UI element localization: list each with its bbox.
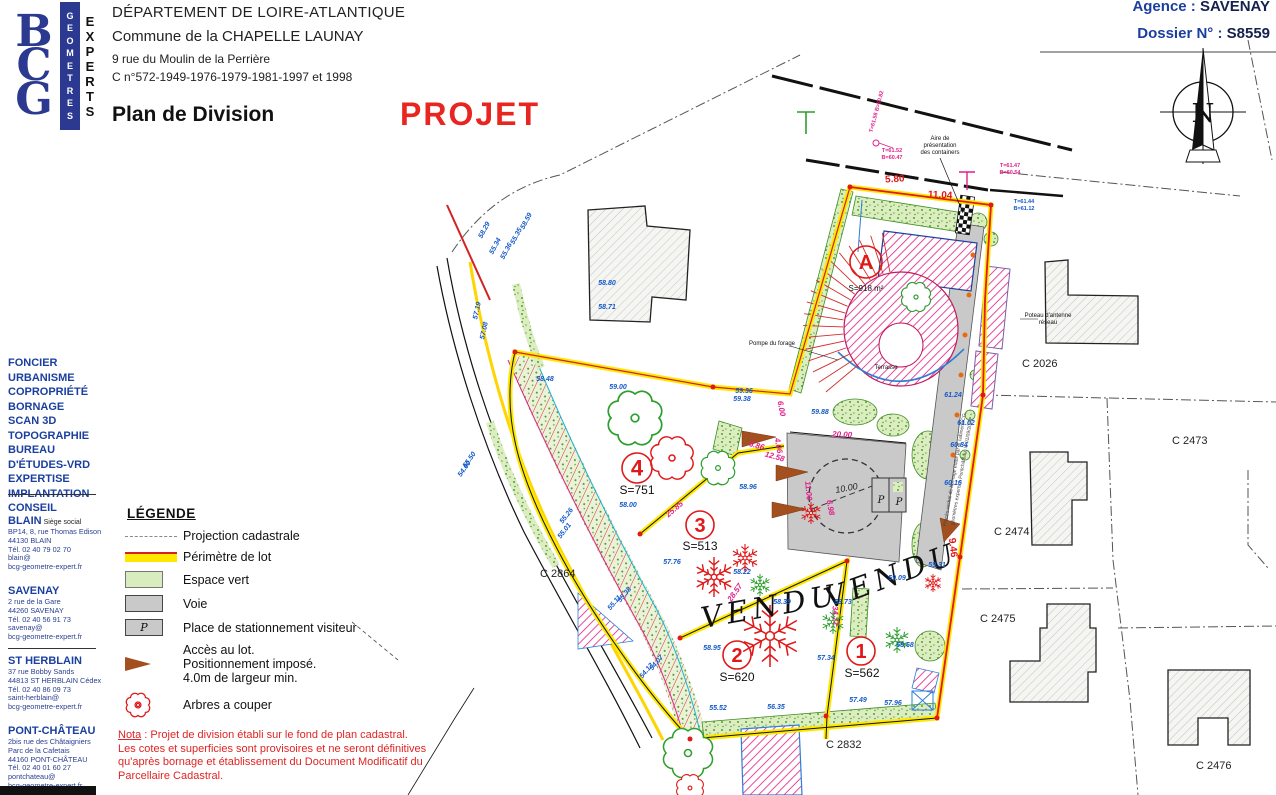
- legend-label: 4.0m de largeur min.: [183, 671, 316, 685]
- lot-area-2: S=620: [719, 670, 754, 684]
- map-label: T=61.47: [1000, 163, 1020, 169]
- sidebar-service-item: FONCIER: [8, 356, 90, 371]
- lot-area-4: S=751: [619, 483, 654, 497]
- map-label: 59.31: [928, 562, 946, 569]
- map-label: C 2476: [1196, 760, 1231, 772]
- legend-label: Place de stationnement visiteur: [183, 621, 357, 635]
- legend-label: Périmètre de lot: [183, 550, 271, 564]
- office-name: PONT-CHÂTEAU: [8, 725, 112, 737]
- legend-item-vert: Espace vert: [125, 571, 370, 588]
- sidebar-service-item: TOPOGRAPHIE: [8, 429, 90, 444]
- legend-item-parking: PPlace de stationnement visiteur: [125, 619, 370, 636]
- map-label: C 2475: [980, 613, 1015, 625]
- parking-swatch-icon: P: [125, 619, 163, 636]
- nota-line-3: qu'après bornage et établissement du Doc…: [118, 756, 454, 770]
- map-label: P: [877, 495, 885, 506]
- bcg-logo-letters: BCG: [8, 2, 60, 130]
- lot-area-3: S=513: [682, 539, 717, 553]
- plan-de-division-page: AS=918 m²4S=7513S=5132S=6201S=562 C 2026…: [0, 0, 1276, 795]
- cadastral-swatch-icon: [125, 536, 177, 537]
- map-label: T=61.58 B=60.82: [869, 90, 886, 133]
- header-departement: DÉPARTEMENT DE LOIRE-ATLANTIQUE: [112, 4, 405, 21]
- map-label: N: [1192, 99, 1215, 129]
- legend-label: Projection cadastrale: [183, 529, 300, 543]
- office-name: SAVENAY: [8, 585, 112, 597]
- legend-title: LÉGENDE: [127, 506, 370, 521]
- lot-number-4: 4: [631, 456, 644, 481]
- map-label: 58.48: [536, 376, 554, 383]
- map-label: 56.35: [767, 704, 785, 711]
- map-label: 55.52: [709, 705, 727, 712]
- map-label: 58.22: [733, 569, 751, 576]
- bcg-logo-experts: EXPERTS: [80, 2, 100, 130]
- map-label: 59.38: [733, 396, 751, 403]
- map-label: 60.84: [950, 442, 968, 449]
- map-label: 61.24: [944, 392, 962, 399]
- legend-rows: Projection cadastralePérimètre de lotEsp…: [125, 529, 370, 718]
- sidebar-services: FONCIERURBANISMECOPROPRIÉTÉBORNAGESCAN 3…: [8, 356, 90, 516]
- legend-label: Voie: [183, 597, 207, 611]
- sidebar-divider-2: [8, 648, 96, 649]
- map-label: 11.04: [928, 189, 953, 201]
- map-label: Poteau d'antenne: [1025, 313, 1073, 319]
- legend-label: Accès au lot.: [183, 643, 316, 657]
- map-label: 55.01: [557, 522, 573, 540]
- header-address: 9 rue du Moulin de la Perrière: [112, 52, 405, 66]
- office-line: bcg-geometre-expert.fr: [8, 633, 112, 642]
- office-block: ST HERBLAIN37 rue Bobby Sands44813 ST HE…: [8, 655, 112, 712]
- map-label: 57.49: [849, 697, 867, 704]
- nota-line-2: Les cotes et superficies sont provisoire…: [118, 743, 454, 757]
- sidebar-service-item: EXPERTISE: [8, 472, 90, 487]
- map-label: T=61.52: [882, 148, 902, 154]
- sidebar-divider-1: [8, 494, 96, 495]
- map-label: 58.73: [834, 599, 852, 606]
- office-line: bcg-geometre-expert.fr: [8, 703, 112, 712]
- office-block: PONT-CHÂTEAU2bis rue des ChâtaigniersPar…: [8, 725, 112, 791]
- legend-label: Positionnement imposé.: [183, 657, 316, 671]
- nota-block: Nota : Projet de division établi sur le …: [118, 729, 454, 783]
- lot-number-2: 2: [731, 645, 742, 667]
- map-label: Pompe du forage: [749, 341, 796, 347]
- map-label: 6.00: [776, 400, 788, 417]
- map-label: 11.00: [803, 481, 814, 502]
- legend-item-acces: Accès au lot.Positionnement imposé.4.0m …: [125, 643, 370, 685]
- map-label: 58.71: [598, 304, 616, 311]
- map-label: 55.34: [488, 237, 502, 256]
- nota-line-4: Parcellaire Cadastral.: [118, 770, 454, 784]
- lot-number-3: 3: [694, 515, 705, 537]
- map-label: B=60.47: [882, 155, 903, 161]
- map-label: réseau: [1039, 320, 1057, 326]
- perimetre-swatch-icon: [125, 552, 177, 562]
- sidebar-service-item: CONSEIL: [8, 501, 90, 516]
- legend-label: Espace vert: [183, 573, 249, 587]
- sidebar-service-item: D'ÉTUDES-VRD: [8, 458, 90, 473]
- map-label: 58.59: [519, 212, 533, 231]
- sidebar-service-item: BUREAU: [8, 443, 90, 458]
- map-label: 58.80: [598, 280, 616, 287]
- map-label: 57.96: [884, 700, 902, 707]
- legend-label: Arbres a couper: [183, 698, 272, 712]
- legend-item-voie: Voie: [125, 595, 370, 612]
- map-label: 58.68: [896, 642, 914, 649]
- header-cadastre-refs: C n°572-1949-1976-1979-1981-1997 et 1998: [112, 70, 405, 84]
- bcg-logo-geometres: GEOMETRES: [60, 2, 80, 130]
- map-label: C 2026: [1022, 358, 1057, 370]
- legend-item-perimetre: Périmètre de lot: [125, 550, 370, 564]
- legend-item-arbre: Arbres a couper: [125, 692, 370, 718]
- projet-stamp: PROJET: [400, 96, 540, 133]
- map-label: P: [895, 497, 903, 508]
- map-label: C 2474: [994, 526, 1029, 538]
- sidebar-service-item: URBANISME: [8, 371, 90, 386]
- dossier-line: Dossier N° : S8559: [1132, 20, 1270, 47]
- map-label: 59.88: [811, 409, 829, 416]
- map-label: C 2832: [826, 739, 861, 751]
- page-title: Plan de Division: [112, 103, 274, 127]
- office-line: bcg-geometre-expert.fr: [8, 563, 112, 572]
- map-label: présentation: [923, 143, 956, 149]
- map-label: C 2864: [540, 568, 575, 580]
- map-label: 61.02: [957, 420, 975, 427]
- office-block: SAVENAY2 rue de la Gare44260 SAVENAYTél.…: [8, 585, 112, 642]
- agency-dossier-block: Agence : SAVENAY Dossier N° : S8559: [1132, 0, 1270, 47]
- map-label: 58.00: [619, 502, 637, 509]
- tree-to-cut-icon: [125, 692, 151, 718]
- lot-area-A: S=918 m²: [849, 284, 884, 293]
- office-name: ST HERBLAIN: [8, 655, 112, 667]
- map-label: 57.76: [663, 559, 681, 566]
- map-label: 58.95: [703, 645, 721, 652]
- vert-swatch-icon: [125, 571, 163, 588]
- map-label: 58.39: [773, 599, 791, 606]
- map-label: 59.36: [735, 388, 753, 395]
- office-name: BLAINSiège social: [8, 515, 112, 527]
- road-edges-top: [772, 76, 1072, 196]
- lot-area-1: S=562: [844, 666, 879, 680]
- sidebar-bottom-bar: [0, 786, 96, 795]
- map-label: des containers: [920, 150, 959, 156]
- bcg-logo: BCG GEOMETRES EXPERTS: [8, 2, 108, 130]
- legend: LÉGENDE Projection cadastralePérimètre d…: [125, 506, 370, 725]
- map-label: 60.16: [944, 480, 962, 487]
- map-label: B=61.12: [1014, 206, 1035, 212]
- acces-swatch-icon: [125, 657, 151, 671]
- sidebar-service-item: COPROPRIÉTÉ: [8, 385, 90, 400]
- map-label: C 2473: [1172, 435, 1207, 447]
- agency-line: Agence : SAVENAY: [1132, 0, 1270, 20]
- sidebar-offices: BLAINSiège socialBP14, 8, rue Thomas Edi…: [8, 515, 112, 795]
- sidebar-service-item: SCAN 3D: [8, 414, 90, 429]
- map-label: 5.80: [885, 173, 906, 185]
- header-commune: Commune de la CHAPELLE LAUNAY: [112, 28, 405, 45]
- map-label: 57.34: [817, 655, 835, 662]
- map-label: 58.96: [739, 484, 757, 491]
- map-label: 54.60: [457, 460, 473, 478]
- sidebar-service-item: BORNAGE: [8, 400, 90, 415]
- map-label: 20.00: [831, 429, 853, 439]
- office-block: BLAINSiège socialBP14, 8, rue Thomas Edi…: [8, 515, 112, 572]
- map-label: 59.09: [888, 575, 906, 582]
- lot-number-1: 1: [855, 641, 866, 663]
- header-block: DÉPARTEMENT DE LOIRE-ATLANTIQUE Commune …: [112, 4, 405, 84]
- map-label: Terrasse: [874, 365, 898, 371]
- legend-item-cadastral: Projection cadastrale: [125, 529, 370, 543]
- nota-line-1: Nota : Projet de division établi sur le …: [118, 729, 454, 743]
- map-label: Aire de: [930, 136, 950, 142]
- lot-number-A: A: [859, 252, 873, 274]
- map-label: 59.00: [609, 384, 627, 391]
- map-label: T=61.44: [1014, 199, 1035, 205]
- voie-swatch-icon: [125, 595, 163, 612]
- map-label: 34.72: [830, 606, 840, 627]
- map-label: B=60.54: [1000, 170, 1022, 176]
- map-label: 58.29: [477, 221, 491, 240]
